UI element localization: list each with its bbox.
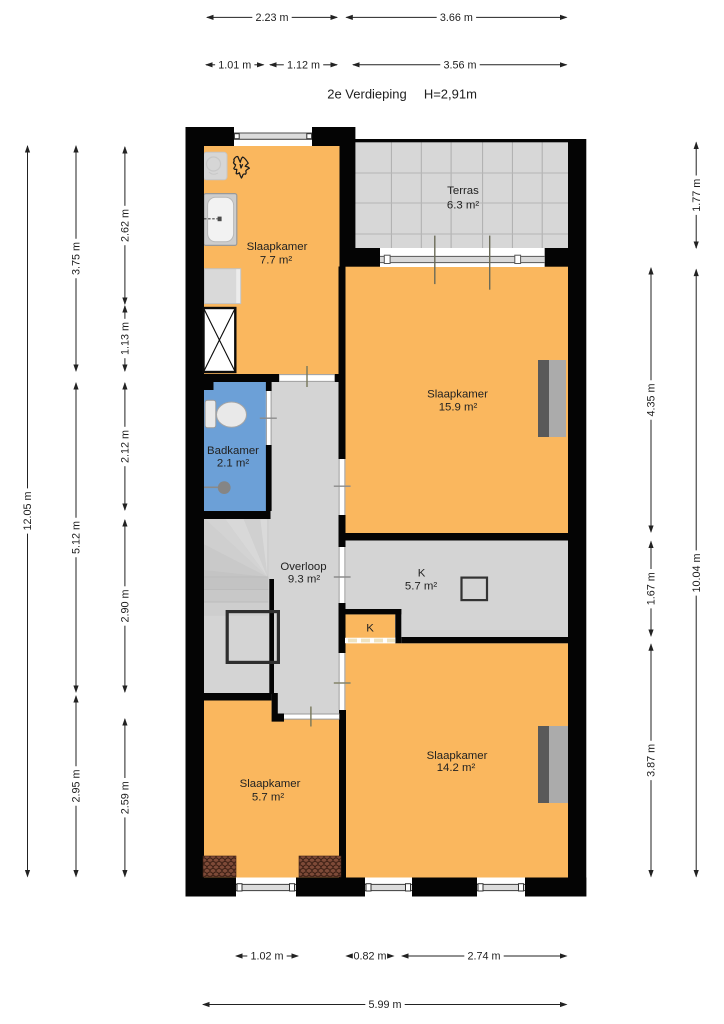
svg-text:2.12 m: 2.12 m <box>120 430 132 463</box>
svg-text:Overloop: Overloop <box>280 561 326 573</box>
svg-text:2.74 m: 2.74 m <box>467 951 500 963</box>
svg-text:2.1 m²: 2.1 m² <box>217 457 249 469</box>
svg-text:3.75 m: 3.75 m <box>71 242 83 275</box>
svg-text:2e Verdieping: 2e Verdieping <box>327 87 407 102</box>
svg-text:Slaapkamer: Slaapkamer <box>427 389 488 401</box>
svg-text:4.35 m: 4.35 m <box>646 383 658 416</box>
svg-text:2.95 m: 2.95 m <box>71 769 83 802</box>
svg-text:1.01 m: 1.01 m <box>218 60 251 72</box>
svg-text:3.66 m: 3.66 m <box>440 12 473 24</box>
svg-text:Badkamer: Badkamer <box>207 445 259 457</box>
svg-text:2.59 m: 2.59 m <box>120 781 132 814</box>
svg-text:1.77 m: 1.77 m <box>691 179 703 212</box>
svg-text:5.12 m: 5.12 m <box>71 521 83 554</box>
svg-text:1.67 m: 1.67 m <box>646 572 658 605</box>
svg-text:H=2,91m: H=2,91m <box>424 87 477 102</box>
svg-text:3.87 m: 3.87 m <box>646 744 658 777</box>
svg-text:1.13 m: 1.13 m <box>120 322 132 355</box>
svg-text:1.12 m: 1.12 m <box>287 60 320 72</box>
svg-text:K: K <box>418 567 426 579</box>
svg-text:9.3 m²: 9.3 m² <box>288 574 320 586</box>
svg-text:3.56 m: 3.56 m <box>443 60 476 72</box>
svg-text:Slaapkamer: Slaapkamer <box>247 241 308 253</box>
svg-text:10.04 m: 10.04 m <box>691 553 703 592</box>
svg-text:5.99 m: 5.99 m <box>368 999 401 1011</box>
svg-text:15.9 m²: 15.9 m² <box>439 402 478 414</box>
svg-text:0.82 m: 0.82 m <box>353 951 386 963</box>
svg-text:Terras: Terras <box>447 185 479 197</box>
svg-text:K: K <box>366 622 374 634</box>
svg-text:14.2 m²: 14.2 m² <box>437 762 476 774</box>
svg-text:1.02 m: 1.02 m <box>250 951 283 963</box>
svg-text:Slaapkamer: Slaapkamer <box>240 778 301 790</box>
svg-text:12.05 m: 12.05 m <box>22 491 34 530</box>
svg-text:2.62 m: 2.62 m <box>120 209 132 242</box>
svg-text:7.7 m²: 7.7 m² <box>260 255 292 267</box>
svg-text:5.7 m²: 5.7 m² <box>405 581 437 593</box>
svg-text:Slaapkamer: Slaapkamer <box>427 750 488 762</box>
svg-text:2.90 m: 2.90 m <box>120 589 132 622</box>
svg-text:6.3 m²: 6.3 m² <box>447 200 479 212</box>
svg-text:2.23 m: 2.23 m <box>255 12 288 24</box>
svg-text:5.7 m²: 5.7 m² <box>252 792 284 804</box>
